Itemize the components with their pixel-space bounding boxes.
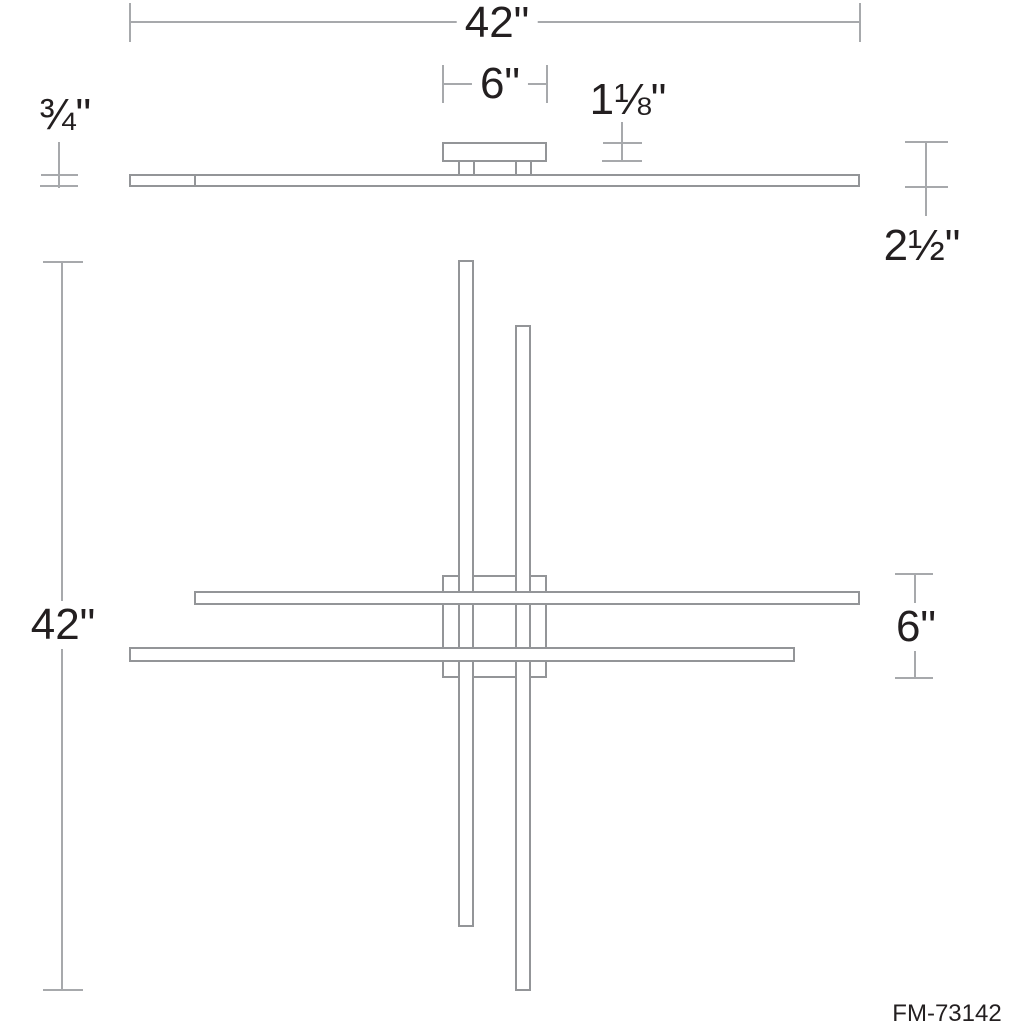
plan-horizontal-bar-top: [194, 591, 860, 605]
dim-bar-thickness-tick-top: [41, 174, 78, 176]
dim-fixture-height-tick-top: [905, 141, 948, 143]
dim-bar-thickness-line: [58, 142, 60, 188]
dim-bar-thickness-tick-bottom: [40, 185, 78, 187]
dim-overall-width-label: 42": [457, 0, 538, 47]
dim-overall-length-tick-top: [43, 261, 83, 263]
dim-overall-width-tick-left: [129, 3, 131, 42]
dim-fixture-height-tick-bottom: [905, 186, 948, 188]
dim-canopy-plan-tick-top: [895, 573, 933, 575]
dim-fixture-height-label: 2½": [876, 222, 969, 270]
side-view-canopy: [442, 142, 547, 162]
dimension-drawing: 42" 6" 1⅛" ¾" 2½" 42" 6" FM-73142: [0, 0, 1024, 1024]
dim-fixture-height-line: [925, 142, 927, 216]
dim-canopy-width-label: 6": [472, 60, 528, 108]
dim-canopy-plan-tick-bottom: [895, 677, 933, 679]
dim-canopy-plan-label: 6": [888, 603, 944, 651]
plan-horizontal-bar-bottom: [129, 647, 795, 662]
dim-canopy-height-tick-bottom: [602, 160, 642, 162]
dim-overall-length-tick-bottom: [43, 989, 83, 991]
side-view-bar: [129, 174, 860, 187]
dim-bar-thickness-label: ¾": [31, 91, 99, 139]
dim-overall-length-label: 42": [23, 601, 104, 649]
model-number: FM-73142: [892, 1002, 1001, 1024]
side-view-bar-joint-line: [194, 175, 196, 186]
dim-overall-width-tick-right: [859, 3, 861, 42]
dim-canopy-height-tick-top: [603, 142, 642, 144]
dim-canopy-height-label: 1⅛": [582, 76, 675, 124]
